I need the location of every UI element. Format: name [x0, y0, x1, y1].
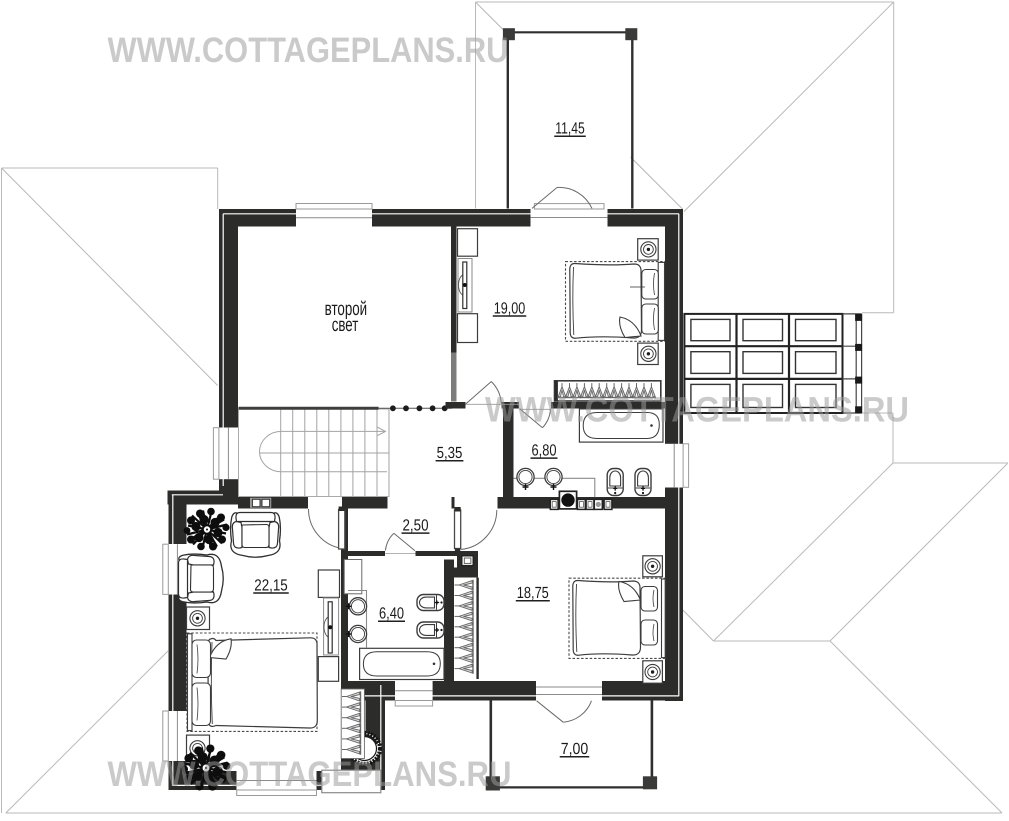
- svg-text:22,15: 22,15: [254, 576, 288, 594]
- svg-text:7,00: 7,00: [561, 740, 589, 758]
- svg-text:свет: свет: [332, 314, 359, 336]
- svg-text:19,00: 19,00: [494, 299, 526, 317]
- svg-text:6,40: 6,40: [379, 605, 404, 623]
- svg-text:WWW.COTTAGEPLANS.RU: WWW.COTTAGEPLANS.RU: [485, 390, 909, 430]
- svg-text:2,50: 2,50: [403, 516, 429, 534]
- svg-text:6,80: 6,80: [532, 441, 557, 459]
- svg-text:WWW.COTTAGEPLANS.RU: WWW.COTTAGEPLANS.RU: [108, 754, 512, 794]
- svg-text:5,35: 5,35: [437, 444, 463, 462]
- svg-text:11,45: 11,45: [555, 120, 585, 138]
- svg-text:18,75: 18,75: [517, 584, 549, 602]
- svg-text:WWW.COTTAGEPLANS.RU: WWW.COTTAGEPLANS.RU: [108, 30, 509, 70]
